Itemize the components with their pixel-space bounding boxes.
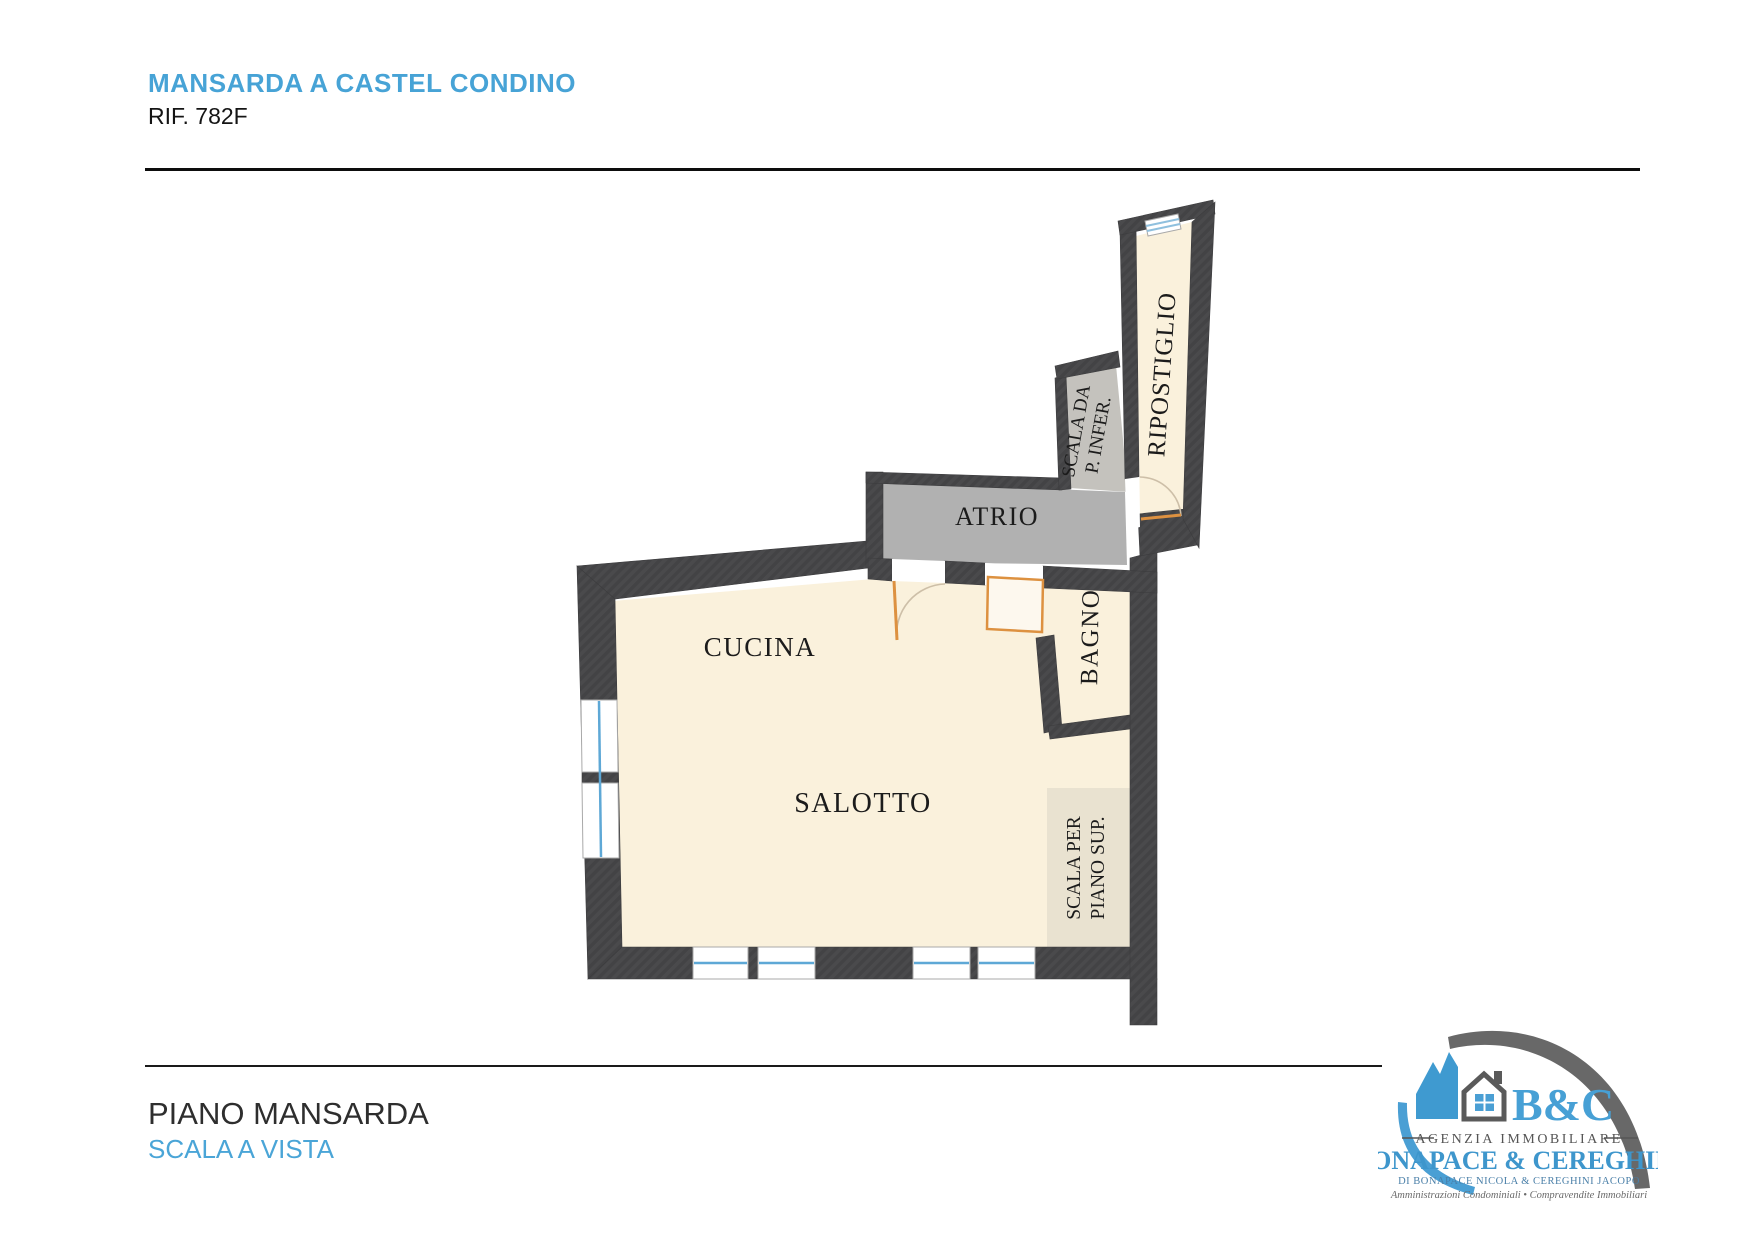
floor-name: PIANO MANSARDA [148, 1096, 429, 1132]
logo-company: BONAPACE & CEREGHINI [1378, 1146, 1658, 1175]
page: MANSARDA A CASTEL CONDINO RIF. 782F [0, 0, 1753, 1240]
logo-owners: DI BONAPACE NICOLA & CEREGHINI JACOPO [1398, 1176, 1640, 1187]
wall-right [1130, 551, 1157, 1025]
label-scala-per-2: PIANO SUP. [1088, 817, 1109, 920]
bottom-divider [145, 1065, 1382, 1067]
wall-bottom [588, 947, 1157, 979]
wall-atrio-bottom-2 [945, 561, 985, 585]
label-cucina: CUCINA [704, 632, 817, 662]
logo-services: Amministrazioni Condominiali • Compraven… [1390, 1190, 1647, 1201]
label-scala-per-1: SCALA PER [1064, 816, 1085, 920]
wall-atrio-left [866, 472, 883, 568]
label-salotto: SALOTTO [794, 788, 932, 819]
opening-atrio-ripostiglio [1125, 477, 1140, 530]
logo-tagline: AGENZIA IMMOBILIARE [1415, 1132, 1622, 1147]
label-bagno: BAGNO [1076, 588, 1105, 685]
agency-logo: B&C AGENZIA IMMOBILIARE BONAPACE & CEREG… [1378, 1022, 1658, 1202]
logo-mountain-icon [1416, 1052, 1458, 1119]
label-atrio: ATRIO [955, 502, 1039, 531]
logo-initials: B&C [1512, 1079, 1614, 1130]
logo-chimney [1494, 1071, 1502, 1084]
staircase-note: SCALA A VISTA [148, 1134, 334, 1165]
door-leaf-panel [987, 577, 1043, 632]
opening-atrio-cucina [892, 559, 945, 583]
wall-atrio-bottom-1 [868, 558, 892, 581]
